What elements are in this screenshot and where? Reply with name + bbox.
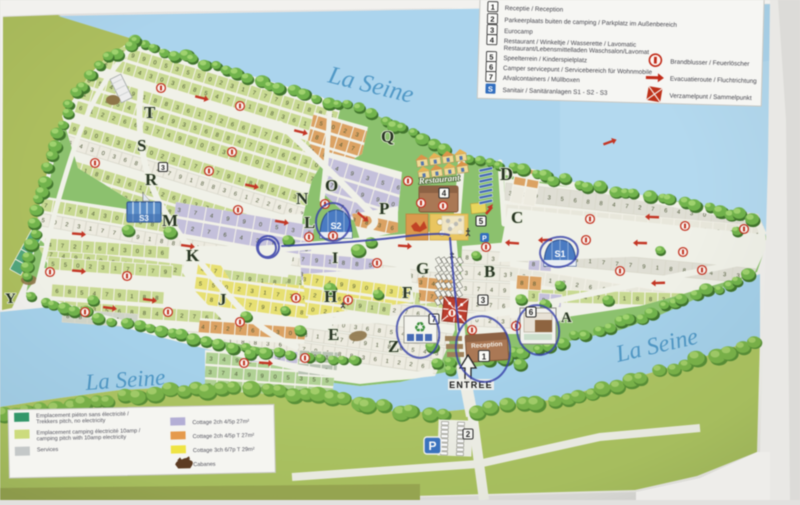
svg-text:3: 3 bbox=[490, 26, 494, 35]
svg-text:6: 6 bbox=[529, 308, 534, 317]
svg-text:P: P bbox=[482, 236, 487, 243]
svg-text:3: 3 bbox=[481, 296, 486, 305]
svg-text:1: 1 bbox=[491, 3, 495, 12]
svg-text:5: 5 bbox=[479, 217, 484, 226]
svg-text:7: 7 bbox=[489, 73, 493, 82]
svg-text:6: 6 bbox=[489, 63, 493, 72]
svg-text:5: 5 bbox=[489, 53, 493, 62]
svg-text:3: 3 bbox=[161, 165, 165, 172]
svg-text:Cabanes: Cabanes bbox=[193, 462, 216, 468]
svg-text:Cottage 2ch 4/5p 27m²: Cottage 2ch 4/5p 27m² bbox=[192, 419, 249, 426]
svg-text:Services: Services bbox=[37, 447, 59, 453]
svg-text:S: S bbox=[488, 85, 493, 94]
svg-text:2: 2 bbox=[490, 15, 494, 24]
svg-text:Eurocamp: Eurocamp bbox=[504, 28, 533, 36]
